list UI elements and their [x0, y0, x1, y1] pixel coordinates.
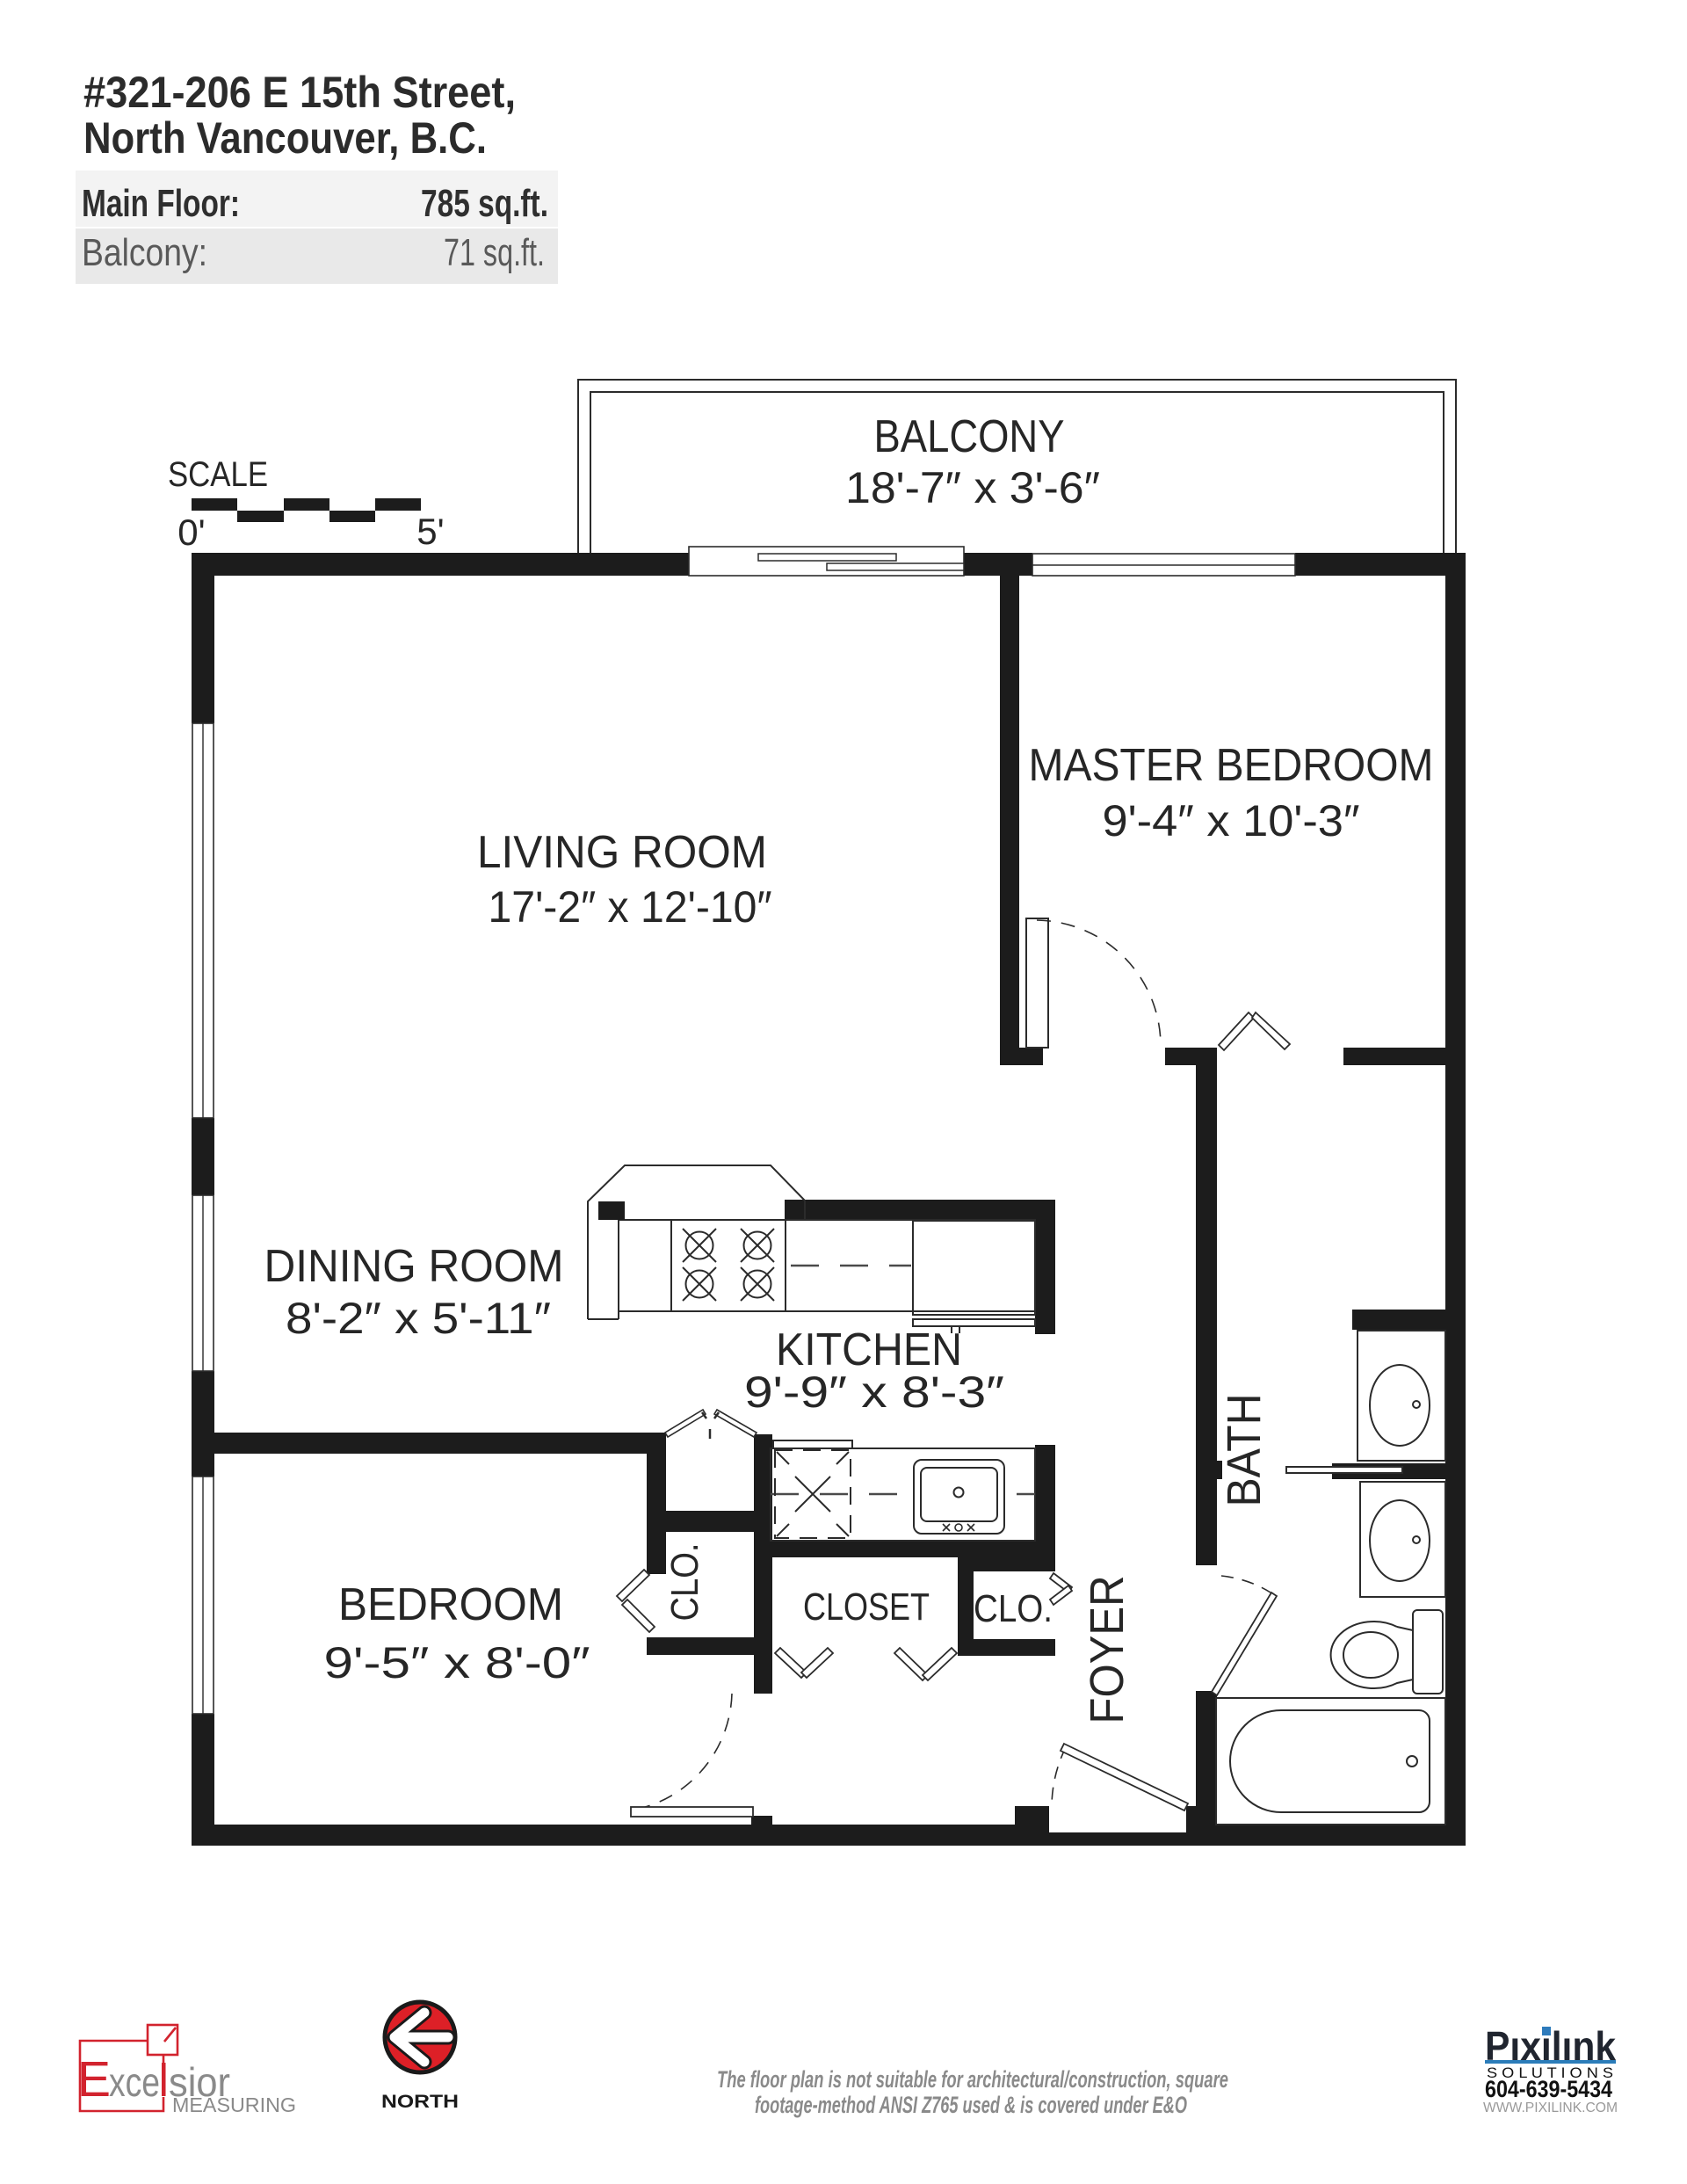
svg-text:DINING ROOM: DINING ROOM	[264, 1241, 564, 1292]
svg-text:MASTER BEDROOM: MASTER BEDROOM	[1029, 740, 1434, 791]
svg-text:0': 0'	[177, 512, 205, 553]
svg-text:BALCONY: BALCONY	[874, 411, 1065, 462]
svg-text:xce: xce	[109, 2059, 160, 2105]
svg-text:BEDROOM: BEDROOM	[338, 1579, 563, 1630]
svg-text:WWW.PIXILINK.COM: WWW.PIXILINK.COM	[1483, 2101, 1618, 2115]
svg-text:17'-2″ x 12'-10″: 17'-2″ x 12'-10″	[489, 882, 772, 932]
svg-text:LIVING ROOM: LIVING ROOM	[477, 827, 767, 878]
svg-text:18'-7″ x 3'-6″: 18'-7″ x 3'-6″	[845, 463, 1100, 512]
svg-text:71 sq.ft.: 71 sq.ft.	[444, 231, 545, 274]
svg-text:North Vancouver, B.C.: North Vancouver, B.C.	[83, 113, 487, 163]
svg-text:FOYER: FOYER	[1081, 1576, 1133, 1724]
svg-text:9'-9″ x 8'-3″: 9'-9″ x 8'-3″	[744, 1368, 1004, 1417]
svg-text:8'-2″ x 5'-11″: 8'-2″ x 5'-11″	[286, 1294, 551, 1343]
svg-text:9'-5″ x 8'-0″: 9'-5″ x 8'-0″	[324, 1638, 590, 1687]
svg-text:The floor plan is not suitable: The floor plan is not suitable for archi…	[717, 2066, 1228, 2093]
svg-text:604-639-5434: 604-639-5434	[1485, 2076, 1612, 2102]
svg-text:CLOSET: CLOSET	[803, 1585, 930, 1629]
svg-text:5': 5'	[416, 511, 444, 552]
svg-text:MEASURING: MEASURING	[172, 2093, 296, 2116]
svg-text:E: E	[77, 2051, 111, 2108]
svg-text:NORTH: NORTH	[381, 2092, 459, 2112]
svg-text:footage-method ANSI Z765 used: footage-method ANSI Z765 used & is cover…	[755, 2092, 1187, 2118]
svg-text:CLO.: CLO.	[974, 1587, 1053, 1630]
svg-text:Balcony:: Balcony:	[82, 231, 207, 274]
svg-text:9'-4″ x 10'-3″: 9'-4″ x 10'-3″	[1103, 796, 1360, 845]
svg-text:#321-206 E 15th Street,: #321-206 E 15th Street,	[83, 68, 516, 117]
svg-text:Main Floor:: Main Floor:	[82, 182, 240, 225]
svg-text:CLO.: CLO.	[663, 1543, 706, 1622]
svg-text:BATH: BATH	[1218, 1394, 1271, 1507]
svg-text:SCALE: SCALE	[168, 455, 268, 494]
svg-text:785 sq.ft.: 785 sq.ft.	[421, 182, 548, 225]
